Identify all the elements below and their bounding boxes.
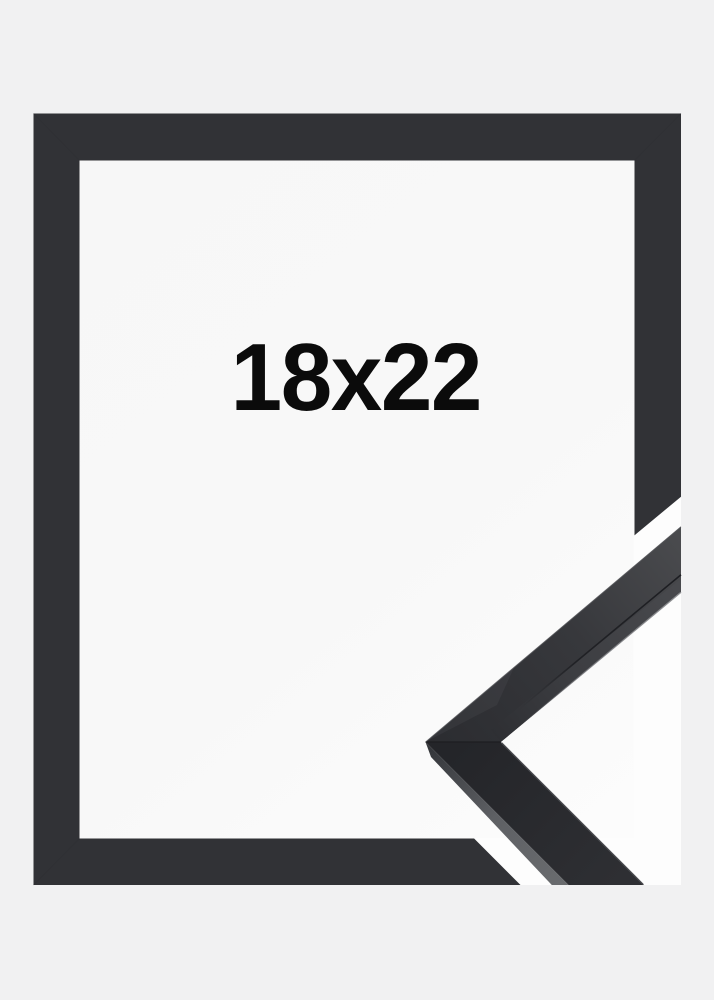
svg-text:18x22: 18x22 (231, 323, 481, 430)
